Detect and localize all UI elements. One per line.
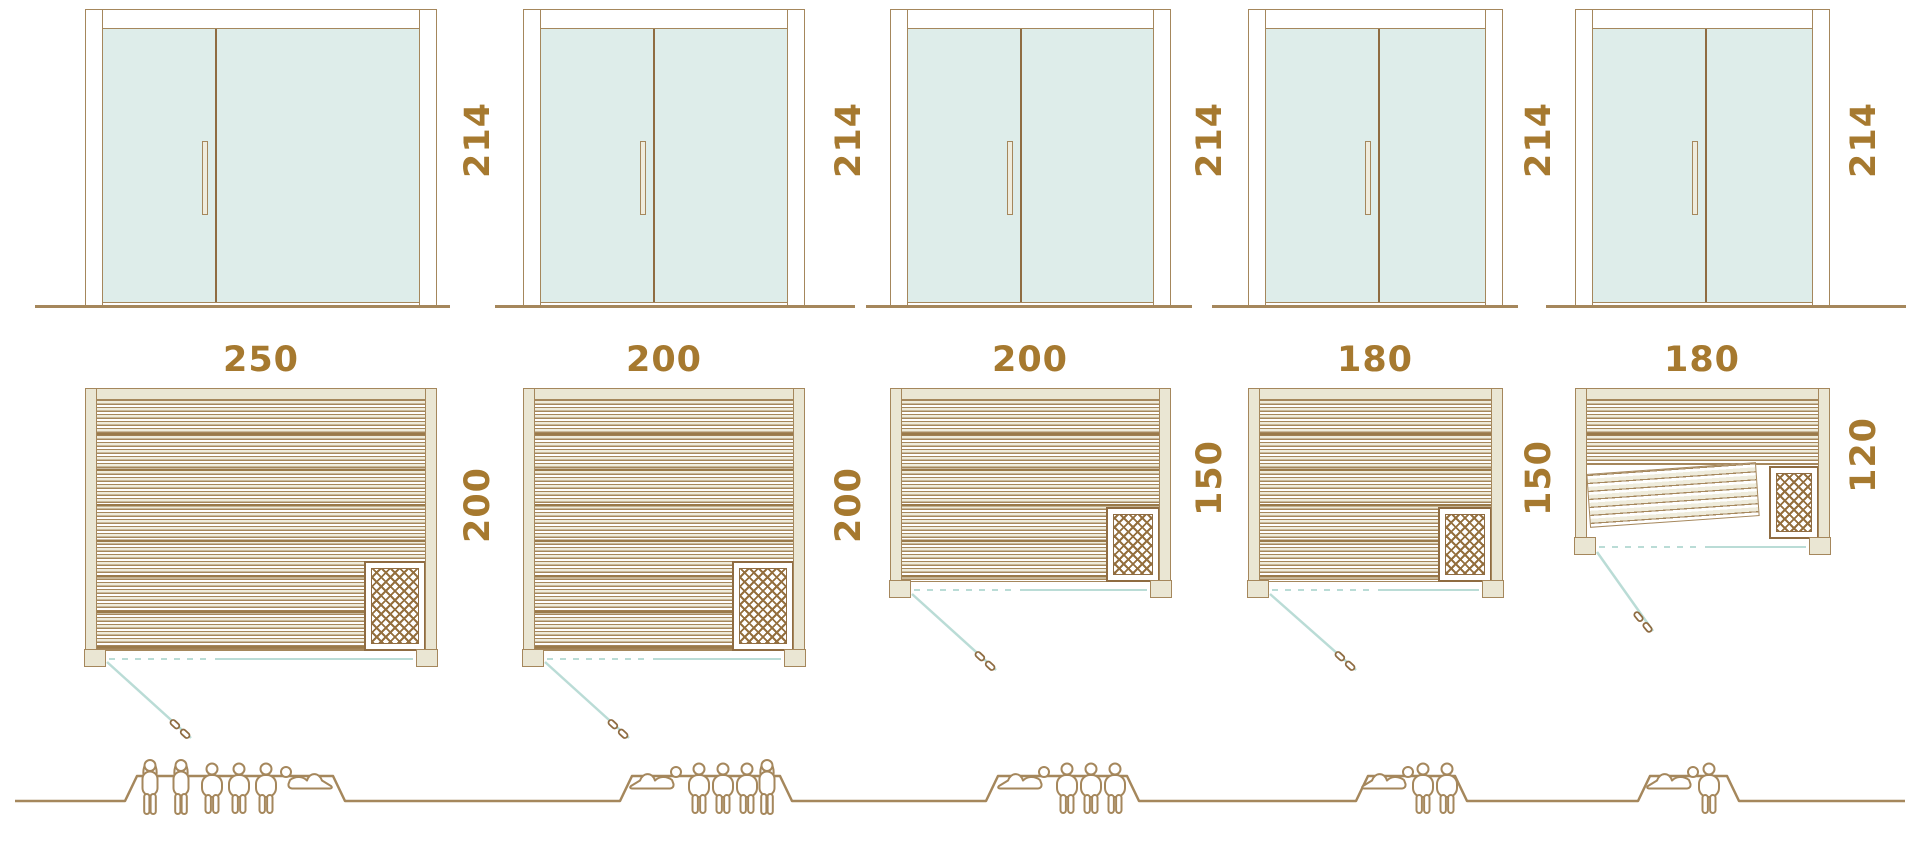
person-sitting-icon [1057, 764, 1077, 814]
door-glass-panels-icon [1265, 28, 1486, 303]
plan-wall-right [425, 388, 437, 651]
ground-platform-line [15, 776, 1905, 801]
door-leaf-dashed-line [1599, 546, 1703, 549]
plan-wall-left [1575, 388, 1587, 539]
floor-plan-2 [523, 388, 805, 667]
plan-open-side-line [1020, 589, 1147, 592]
door-elevation-5 [1575, 9, 1830, 306]
door-elevation-3 [890, 9, 1171, 306]
heater-lattice-icon [739, 568, 787, 644]
door-leaf-dashed-line [914, 589, 1018, 592]
person-sitting-icon [202, 764, 222, 814]
plan-corner-post-left [1247, 580, 1269, 598]
plan-width-label-3: 200 [960, 340, 1100, 380]
person-sitting-icon [737, 764, 757, 814]
door-frame-post-left-icon [890, 9, 908, 306]
person-sitting-icon [1413, 764, 1433, 814]
person-sitting-icon [689, 764, 709, 814]
heater-lattice-icon [1776, 473, 1812, 532]
plan-corner-post-right [1809, 537, 1831, 555]
capacity-group-4 [1362, 764, 1457, 814]
door-glass-panels-icon [1592, 28, 1813, 303]
door-handle-icon [1365, 141, 1371, 215]
capacity-group-5 [1647, 764, 1719, 814]
person-sitting-icon [1437, 764, 1457, 814]
plan-corner-post-left [522, 649, 544, 667]
plan-wall-right [1491, 388, 1503, 582]
door-height-label-1: 214 [458, 90, 498, 190]
plan-wall-top [1248, 388, 1503, 400]
door-frame-post-right-icon [787, 9, 805, 306]
door-height-label-2: 214 [829, 90, 869, 190]
tilted-lounger-bench-icon [1586, 462, 1759, 528]
door-glass-divider-icon [1020, 29, 1022, 302]
heater-icon [1106, 507, 1160, 582]
door-ground-line [866, 305, 1192, 308]
bench-slats-icon [1586, 399, 1819, 465]
plan-width-label-4: 180 [1305, 340, 1445, 380]
door-leaf-dashed-line [1272, 589, 1376, 592]
door-frame-post-left-icon [85, 9, 103, 306]
plan-wall-top [85, 388, 437, 400]
door-frame-post-left-icon [523, 9, 541, 306]
person-sitting-icon [713, 764, 733, 814]
door-frame-header-icon [1265, 9, 1486, 29]
floor-plan-1 [85, 388, 437, 667]
plan-wall-left [890, 388, 902, 582]
plan-corner-post-right [1482, 580, 1504, 598]
plan-depth-label-2: 200 [829, 455, 869, 555]
plan-open-side-line [1378, 589, 1479, 592]
heater-lattice-icon [371, 568, 419, 644]
door-frame-header-icon [102, 9, 420, 29]
door-glass-panels-icon [102, 28, 420, 303]
plan-wall-right [1159, 388, 1171, 582]
door-leaf-dashed-line [109, 658, 213, 661]
door-frame-post-right-icon [1153, 9, 1171, 306]
door-glass-divider-icon [653, 29, 655, 302]
plan-wall-left [85, 388, 97, 651]
door-leaf-dashed-line [547, 658, 651, 661]
door-frame-post-left-icon [1575, 9, 1593, 306]
plan-corner-post-left [84, 649, 106, 667]
person-sitting-icon [1081, 764, 1101, 814]
floor-plan-3 [890, 388, 1171, 598]
plan-corner-post-right [784, 649, 806, 667]
plan-corner-post-right [416, 649, 438, 667]
plan-depth-label-4: 150 [1519, 428, 1559, 528]
plan-corner-post-left [889, 580, 911, 598]
heater-icon [1769, 466, 1819, 539]
heater-icon [364, 561, 426, 651]
plan-wall-left [523, 388, 535, 651]
door-glass-panels-icon [540, 28, 788, 303]
person-standing-icon [174, 760, 189, 814]
person-sitting-icon [256, 764, 276, 814]
door-glass-panels-icon [907, 28, 1154, 303]
door-height-label-5: 214 [1844, 90, 1884, 190]
door-elevation-4 [1248, 9, 1503, 306]
door-glass-divider-icon [1378, 29, 1380, 302]
door-glass-divider-icon [1705, 29, 1707, 302]
door-glass-divider-icon [215, 29, 217, 302]
plan-depth-label-3: 150 [1190, 428, 1230, 528]
plan-open-side-line [1705, 546, 1806, 549]
person-lying-icon [1647, 767, 1698, 789]
person-standing-icon [760, 760, 775, 814]
door-frame-post-right-icon [1812, 9, 1830, 306]
capacity-group-2 [630, 760, 774, 814]
door-elevation-2 [523, 9, 805, 306]
capacity-group-1 [143, 760, 332, 814]
door-frame-post-right-icon [1485, 9, 1503, 306]
person-lying-icon [630, 767, 681, 789]
door-frame-header-icon [907, 9, 1154, 29]
door-elevation-1 [85, 9, 437, 306]
floor-plan-4 [1248, 388, 1503, 598]
plan-corner-post-left [1574, 537, 1596, 555]
heater-lattice-icon [1113, 514, 1153, 575]
person-sitting-icon [1699, 764, 1719, 814]
plan-wall-top [523, 388, 805, 400]
door-handle-icon [640, 141, 646, 215]
door-ground-line [1546, 305, 1906, 308]
plan-open-side-line [653, 658, 781, 661]
heater-icon [732, 561, 794, 651]
plan-wall-right [793, 388, 805, 651]
door-frame-header-icon [1592, 9, 1813, 29]
person-lying-icon [1362, 767, 1413, 789]
door-frame-post-right-icon [419, 9, 437, 306]
floor-plan-5 [1575, 388, 1830, 555]
door-height-label-4: 214 [1519, 90, 1559, 190]
heater-icon [1438, 507, 1492, 582]
heater-lattice-icon [1445, 514, 1485, 575]
plan-open-side-line [215, 658, 413, 661]
plan-depth-label-1: 200 [458, 455, 498, 555]
capacity-group-3 [998, 764, 1125, 814]
door-ground-line [1212, 305, 1518, 308]
plan-width-label-1: 250 [191, 340, 331, 380]
door-ground-line [495, 305, 855, 308]
door-handle-icon [1692, 141, 1698, 215]
plan-width-label-5: 180 [1632, 340, 1772, 380]
sauna-size-comparison-diagram: 214 250 200 214 200 [0, 0, 1920, 843]
door-height-label-3: 214 [1190, 90, 1230, 190]
plan-corner-post-right [1150, 580, 1172, 598]
person-sitting-icon [1105, 764, 1125, 814]
plan-wall-right [1818, 388, 1830, 539]
plan-wall-left [1248, 388, 1260, 582]
person-lying-icon [998, 767, 1049, 789]
plan-wall-top [1575, 388, 1830, 400]
person-sitting-icon [229, 764, 249, 814]
person-standing-icon [143, 760, 158, 814]
plan-width-label-2: 200 [594, 340, 734, 380]
door-frame-post-left-icon [1248, 9, 1266, 306]
door-handle-icon [202, 141, 208, 215]
door-ground-line [35, 305, 450, 308]
door-frame-header-icon [540, 9, 788, 29]
plan-depth-label-5: 120 [1844, 405, 1884, 505]
door-handle-icon [1007, 141, 1013, 215]
plan-wall-top [890, 388, 1171, 400]
person-lying-icon [281, 767, 332, 789]
